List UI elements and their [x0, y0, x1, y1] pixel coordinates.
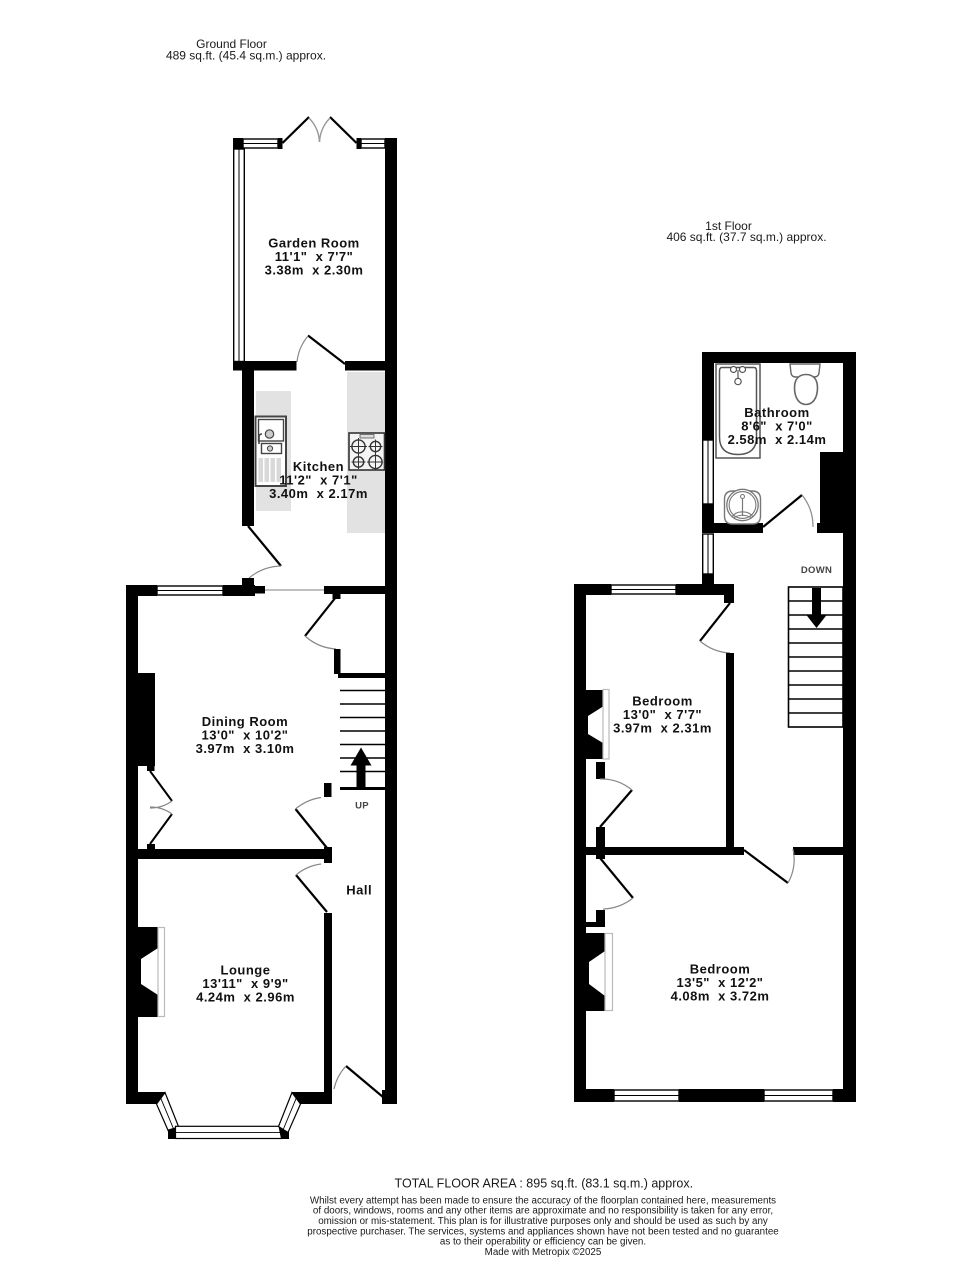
svg-text:Made with Metropix ©2025: Made with Metropix ©2025	[485, 1247, 602, 1258]
svg-text:406 sq.ft. (37.7 sq.m.) approx: 406 sq.ft. (37.7 sq.m.) approx.	[666, 230, 826, 244]
svg-text:UP: UP	[355, 801, 369, 812]
svg-text:3.97m x 3.10m: 3.97m x 3.10m	[196, 741, 295, 756]
svg-text:4.08m x 3.72m: 4.08m x 3.72m	[671, 989, 770, 1004]
svg-text:Whilst every attempt has been: Whilst every attempt has been made to en…	[310, 1195, 776, 1206]
svg-text:4.24m x 2.96m: 4.24m x 2.96m	[196, 990, 295, 1005]
svg-text:Hall: Hall	[346, 883, 372, 898]
svg-text:3.38m x 2.30m: 3.38m x 2.30m	[265, 263, 364, 278]
svg-text:3.97m x 2.31m: 3.97m x 2.31m	[613, 721, 712, 736]
svg-text:3.40m x 2.17m: 3.40m x 2.17m	[269, 486, 368, 501]
svg-text:2.58m x 2.14m: 2.58m x 2.14m	[728, 432, 827, 447]
svg-text:DOWN: DOWN	[801, 565, 832, 576]
svg-text:489 sq.ft. (45.4 sq.m.) approx: 489 sq.ft. (45.4 sq.m.) approx.	[166, 49, 326, 63]
svg-text:TOTAL FLOOR AREA : 895 sq.ft.: TOTAL FLOOR AREA : 895 sq.ft. (83.1 sq.m…	[395, 1176, 694, 1190]
svg-text:omission or mis-statement. Thi: omission or mis-statement. This plan is …	[318, 1216, 768, 1227]
